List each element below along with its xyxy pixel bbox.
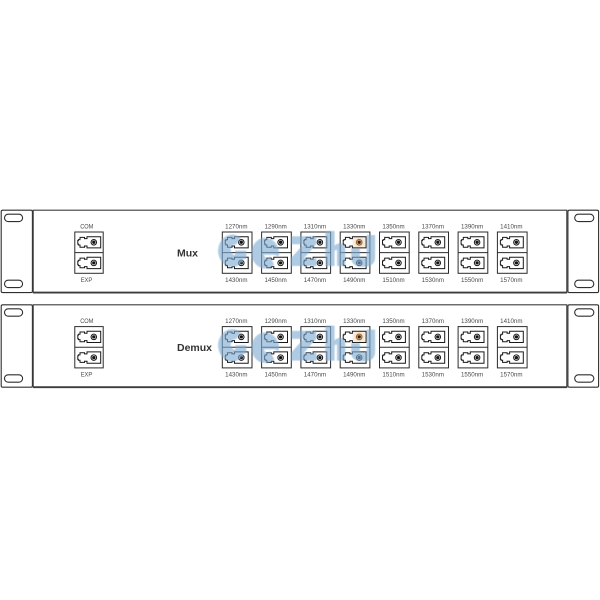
svg-text:1390nm: 1390nm [461,319,483,325]
svg-text:1430nm: 1430nm [225,372,247,378]
svg-text:1490nm: 1490nm [343,372,365,378]
svg-text:1410nm: 1410nm [500,224,522,230]
svg-text:1510nm: 1510nm [382,278,404,284]
svg-text:1270nm: 1270nm [225,224,247,230]
svg-text:1410nm: 1410nm [500,319,522,325]
svg-text:1290nm: 1290nm [265,319,287,325]
svg-text:1350nm: 1350nm [382,319,404,325]
svg-text:1550nm: 1550nm [461,278,483,284]
svg-text:1430nm: 1430nm [225,278,247,284]
svg-text:Demux: Demux [177,343,212,354]
svg-text:1490nm: 1490nm [343,278,365,284]
svg-text:Mux: Mux [177,249,198,260]
svg-text:COM: COM [80,224,93,230]
svg-text:1310nm: 1310nm [304,319,326,325]
svg-text:1550nm: 1550nm [461,372,483,378]
svg-text:COM: COM [80,319,93,325]
svg-text:1390nm: 1390nm [461,224,483,230]
svg-text:1330nm: 1330nm [343,319,365,325]
svg-text:1350nm: 1350nm [382,224,404,230]
svg-text:1570nm: 1570nm [500,372,522,378]
svg-text:1530nm: 1530nm [422,278,444,284]
svg-text:1330nm: 1330nm [343,224,365,230]
svg-text:1370nm: 1370nm [422,319,444,325]
svg-text:EXP: EXP [81,372,93,378]
svg-text:1450nm: 1450nm [265,372,287,378]
svg-text:1370nm: 1370nm [422,224,444,230]
svg-text:1270nm: 1270nm [225,319,247,325]
svg-text:1290nm: 1290nm [265,224,287,230]
svg-text:1510nm: 1510nm [382,372,404,378]
svg-text:EXP: EXP [81,278,93,284]
svg-text:1450nm: 1450nm [265,278,287,284]
svg-text:1310nm: 1310nm [304,224,326,230]
svg-text:1530nm: 1530nm [422,372,444,378]
svg-text:1470nm: 1470nm [304,372,326,378]
svg-text:1570nm: 1570nm [500,278,522,284]
svg-text:1470nm: 1470nm [304,278,326,284]
